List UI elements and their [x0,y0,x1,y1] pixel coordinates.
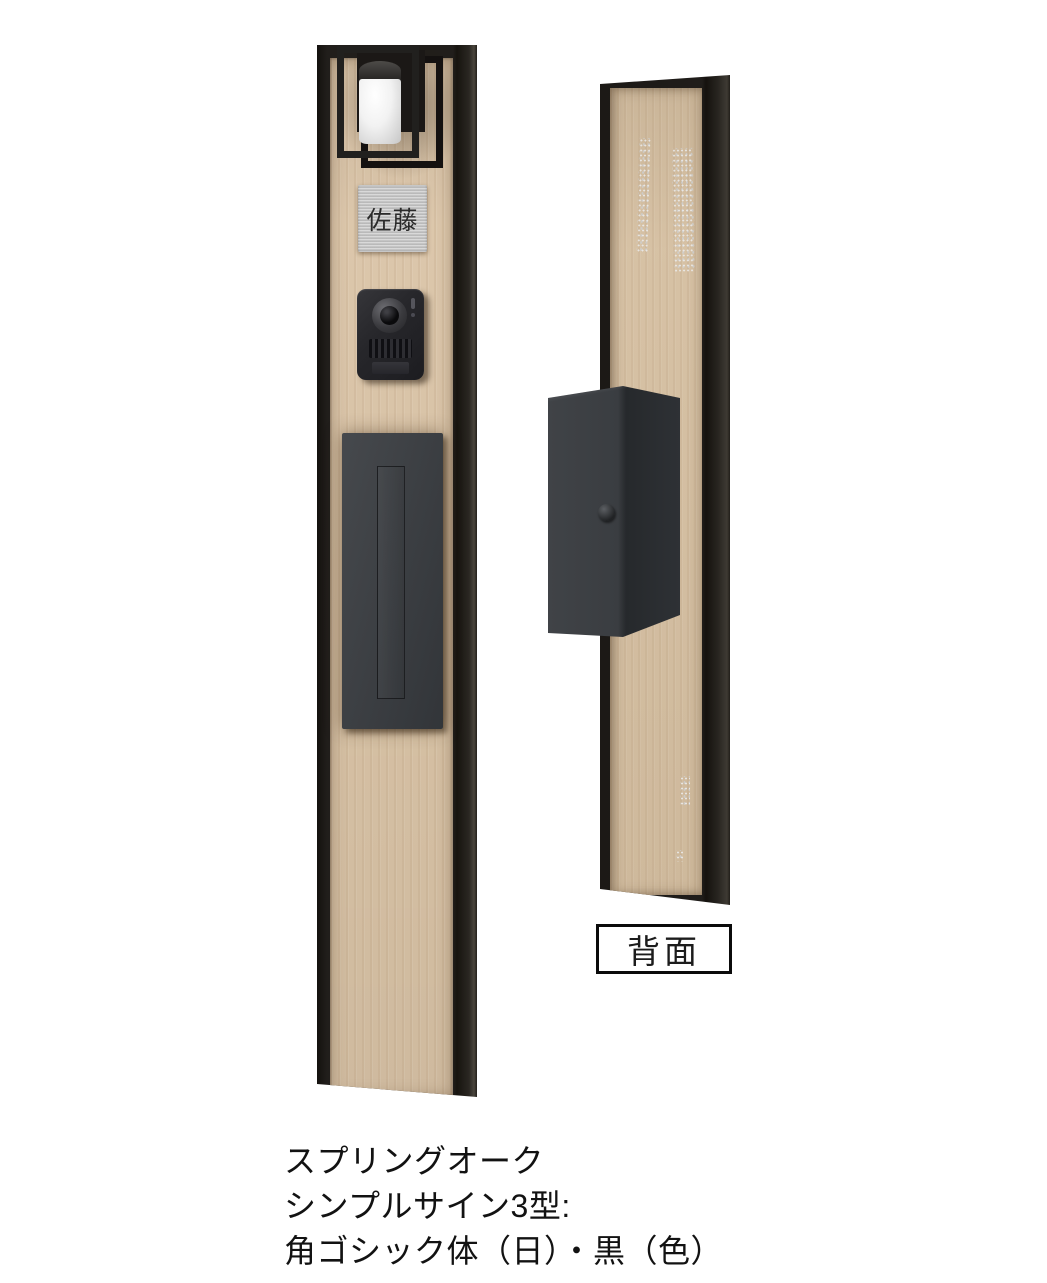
intercom-call-button [372,362,409,374]
mailbox-back-box [548,384,692,640]
mail-slot-flap [377,466,405,699]
intercom-camera-ring [372,298,407,333]
name-plate: 佐藤 [358,185,427,252]
mail-slot-panel [342,433,443,729]
name-plate-text: 佐藤 [366,201,418,237]
caption-line-font-spec: 角ゴシック体（日）・黒（色） [284,1229,723,1274]
back-view-label: 背面 [596,924,732,974]
intercom-led-icon [411,298,415,309]
intercom-camera-lens [380,306,399,325]
engraving-mark [680,776,690,806]
engraving-mark [676,850,684,862]
mailbox-lock-knob [598,504,615,521]
engraving-mark [637,138,651,252]
lantern-cage-front [337,46,419,158]
caption-line-color-name: スプリングオーク [284,1139,723,1184]
back-view-label-text: 背面 [627,925,701,973]
intercom-mic-hole-icon [411,313,415,317]
intercom-unit [357,289,424,380]
product-render-image: 佐藤 背面 スプリングオーク シンプルサイン3型: 角ゴシック体（日）・黒（色） [0,0,1047,1283]
engraving-mark [672,148,695,272]
intercom-speaker-grille [369,339,412,358]
caption: スプリングオーク シンプルサイン3型: 角ゴシック体（日）・黒（色） [284,1139,723,1274]
caption-line-sign-type: シンプルサイン3型: [284,1184,723,1229]
